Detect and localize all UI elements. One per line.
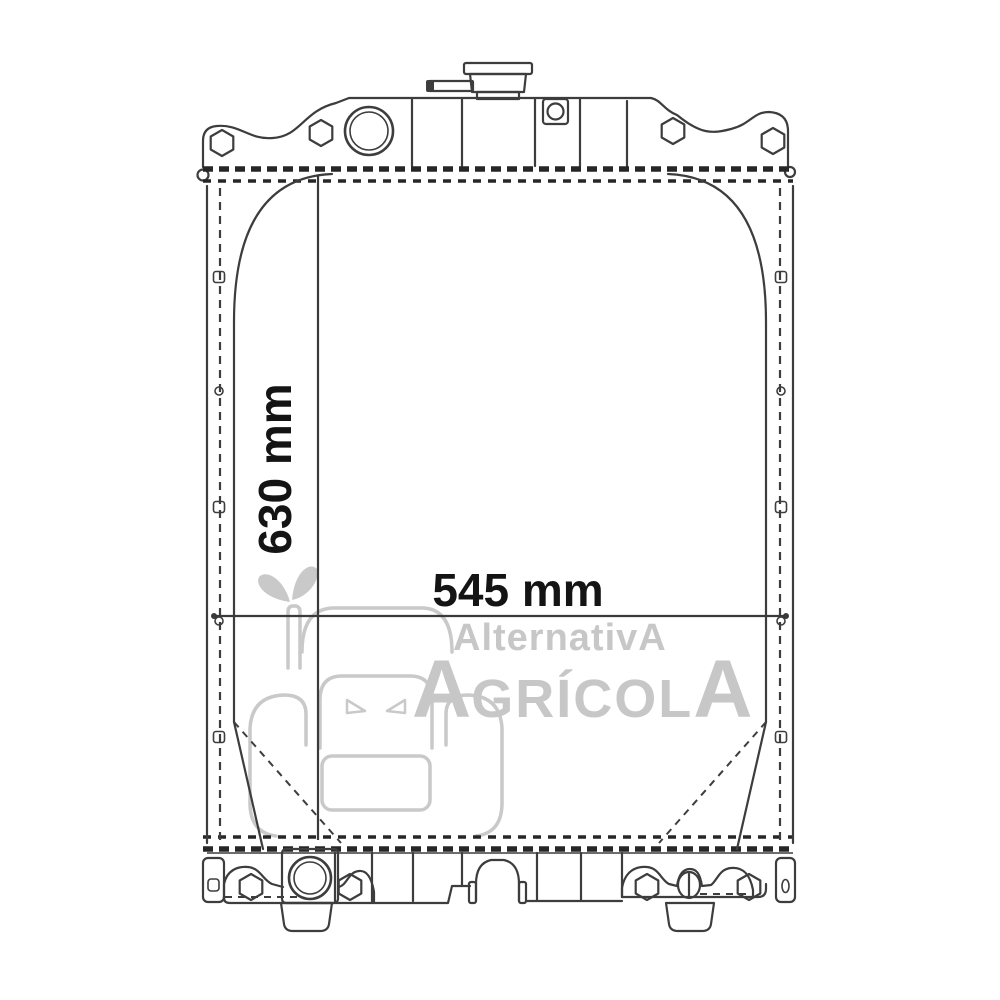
drain-plug-icon [678,872,700,898]
bottom-end-tab-left [203,858,224,902]
watermark-line2-first: A [412,644,471,735]
bottom-tank-ribs [335,853,622,902]
radiator-product-drawing: AlternativA AGRÍCOLA [0,0,1000,1000]
bottom-outlet-circle [289,857,331,899]
overflow-tube-icon [429,81,473,91]
radiator-diagram: AlternativA AGRÍCOLA [0,0,1000,1000]
top-bracket-bolts [211,118,785,156]
shroud-outline [234,174,766,849]
bottom-center-arch [469,860,622,903]
top-tank-outline [203,98,788,167]
watermark-line2-last: A [693,644,752,735]
radiator-cap-icon [426,63,532,99]
width-dimension-label: 545 mm [432,564,603,616]
top-tank [198,63,796,181]
filler-neck-circle [345,107,393,155]
dimension-annotations: 630 mm 545 mm [211,175,789,840]
height-dimension-label: 630 mm [249,383,301,554]
bottom-header-joint [203,837,793,849]
bottom-end-tab-right [776,858,795,902]
bottom-bracket-right [622,867,766,900]
top-header-joint [203,169,793,181]
mounting-foot-left [281,903,332,931]
watermark-line2-middle: GRÍCOL [471,669,693,729]
watermark-line1: AlternativA [453,617,667,659]
mounting-foot-right [666,903,714,931]
bottom-bracket-left [224,849,470,903]
top-tank-ribs [412,99,627,166]
overflow-tube-end [426,80,434,92]
bottom-tank [203,849,795,931]
top-bracket-eyelet [543,99,568,124]
